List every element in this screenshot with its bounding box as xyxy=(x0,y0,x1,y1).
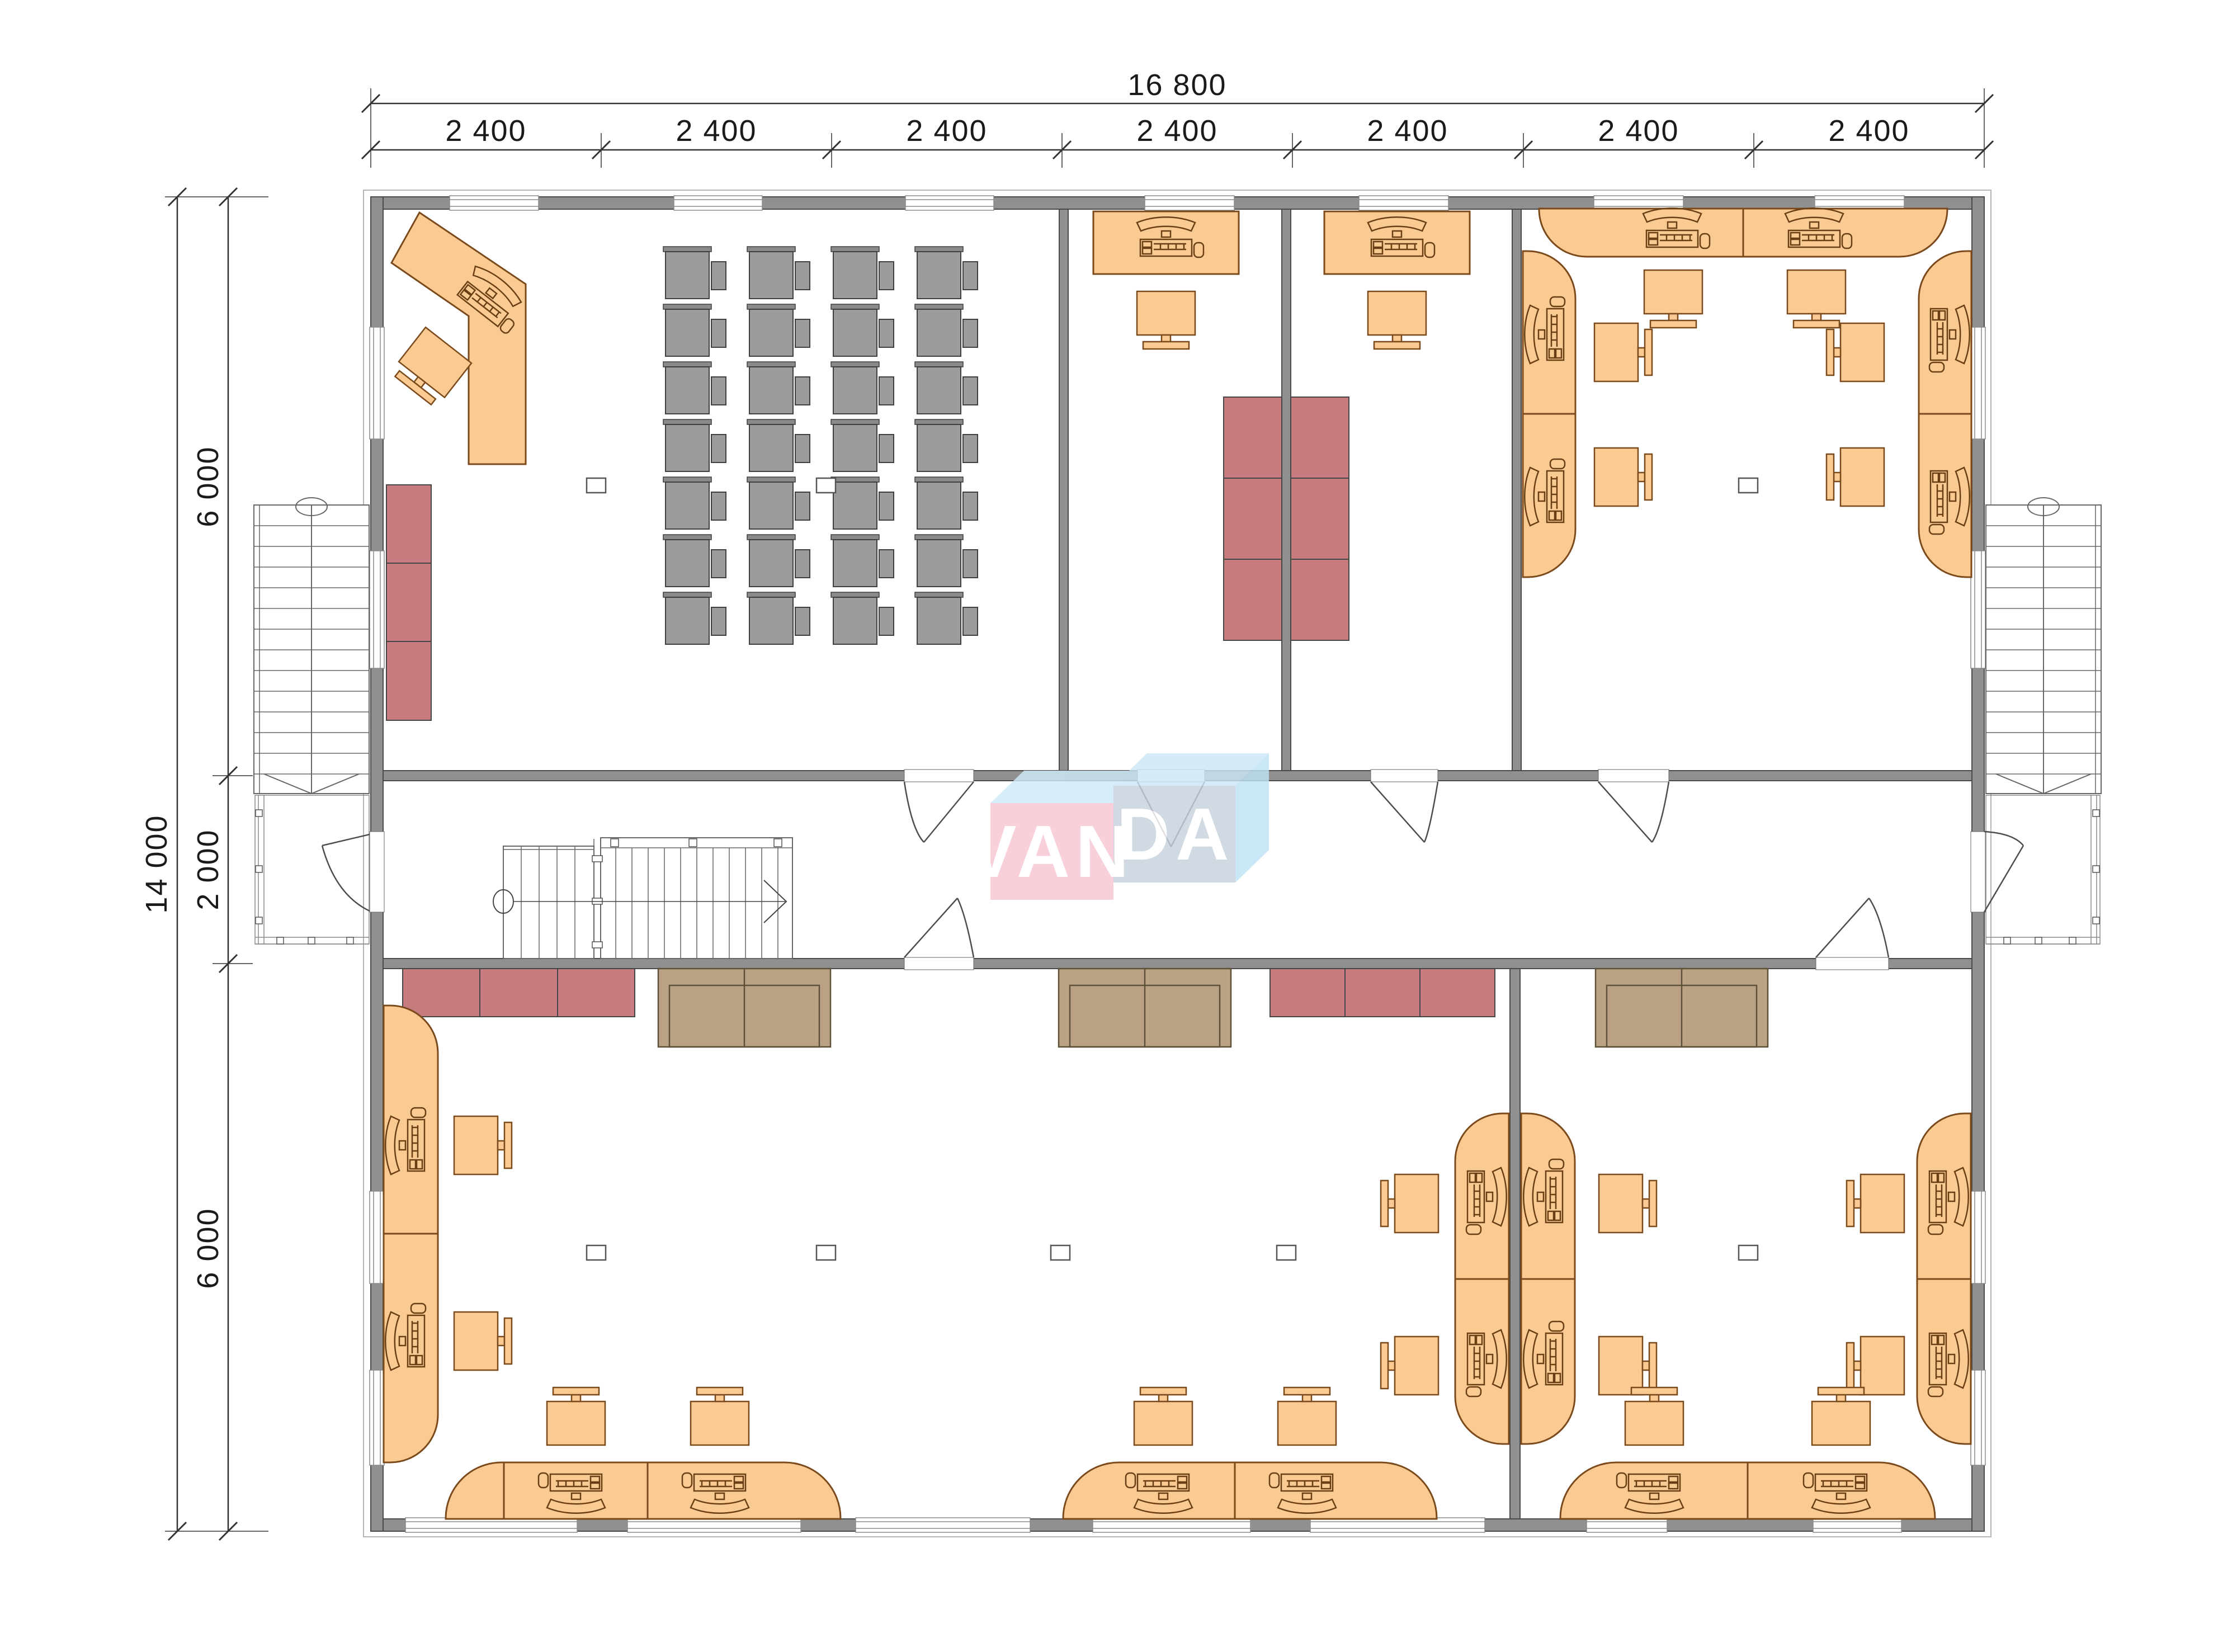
dim-label-total-width: 16 800 xyxy=(1127,68,1226,102)
window xyxy=(370,1191,384,1283)
dim-label-band: 2 000 xyxy=(191,829,225,910)
dim-label-band: 6 000 xyxy=(191,446,225,527)
dim-label-bay: 2 400 xyxy=(906,114,987,148)
desk-strip xyxy=(446,1462,841,1519)
column-marker-icon xyxy=(1277,1245,1296,1260)
window xyxy=(1587,1518,1667,1532)
window xyxy=(1971,1191,1985,1283)
dim-label-bay: 2 400 xyxy=(1598,114,1679,148)
dim-label-bay: 2 400 xyxy=(1828,114,1909,148)
window xyxy=(856,1518,1030,1532)
bookshelf-red xyxy=(386,485,431,720)
desk-strip xyxy=(1063,1462,1437,1519)
sofa-tan xyxy=(1596,969,1768,1047)
column-marker-icon xyxy=(587,478,606,493)
window xyxy=(1145,196,1234,210)
window xyxy=(674,196,762,210)
window xyxy=(1971,327,1985,439)
column-marker-icon xyxy=(1739,478,1758,493)
meeting-table-red xyxy=(1224,397,1282,640)
column-marker-icon xyxy=(817,1245,836,1260)
wall-office2-topright xyxy=(1512,209,1521,771)
window xyxy=(1813,1518,1901,1532)
dim-label-bay: 2 400 xyxy=(445,114,526,148)
interior-stair xyxy=(493,838,792,959)
balcony-left xyxy=(255,795,369,944)
dim-label-bay: 2 400 xyxy=(676,114,757,148)
column-marker-icon xyxy=(817,478,836,493)
dim-label-bay: 2 400 xyxy=(1136,114,1217,148)
window xyxy=(370,551,384,668)
floor-plan-drawing: 16 800 2 400 2 400 2 400 2 400 2 400 2 4… xyxy=(0,0,2237,1652)
logo-text-van: VAN xyxy=(968,810,1135,893)
dim-label-total-height: 14 000 xyxy=(140,814,173,913)
exterior-stair-left xyxy=(254,498,369,794)
window xyxy=(627,1518,801,1532)
column-marker-icon xyxy=(1739,1245,1758,1260)
window xyxy=(1093,1518,1250,1532)
sofa-tan xyxy=(658,969,830,1047)
dimension-left-segments: 6 000 2 000 6 000 xyxy=(191,188,253,1540)
window xyxy=(405,1518,577,1532)
window xyxy=(450,196,539,210)
dimension-top-segments: 2 400 2 400 2 400 2 400 2 400 2 400 2 40… xyxy=(362,114,1993,168)
desk xyxy=(1324,211,1470,274)
window xyxy=(1971,1370,1985,1465)
door-swing-icon xyxy=(322,834,370,911)
wall-classroom-office1 xyxy=(1059,209,1068,771)
balcony-right xyxy=(1986,795,2100,944)
wall-bottom-divider xyxy=(1510,969,1520,1519)
window xyxy=(370,327,384,439)
window xyxy=(1971,551,1985,668)
window xyxy=(1359,196,1448,210)
window xyxy=(905,196,994,210)
sofa-tan xyxy=(1059,969,1231,1047)
dim-label-bay: 2 400 xyxy=(1367,114,1448,148)
sofa-red xyxy=(403,969,635,1017)
column-marker-icon xyxy=(587,1245,606,1260)
meeting-table-red xyxy=(1291,397,1349,640)
desk xyxy=(1093,211,1239,274)
window xyxy=(1310,1518,1485,1532)
floor-plan-canvas: 16 800 2 400 2 400 2 400 2 400 2 400 2 4… xyxy=(0,0,2237,1652)
sofa-red xyxy=(1270,969,1495,1017)
wall-corridor-bottom xyxy=(383,959,1972,969)
wall-office1-office2 xyxy=(1282,209,1291,771)
exterior-stair-right xyxy=(1986,498,2101,794)
window xyxy=(370,1370,384,1465)
logo-text-da: DA xyxy=(1117,793,1235,875)
dim-label-band: 6 000 xyxy=(191,1207,225,1288)
column-marker-icon xyxy=(1051,1245,1070,1260)
